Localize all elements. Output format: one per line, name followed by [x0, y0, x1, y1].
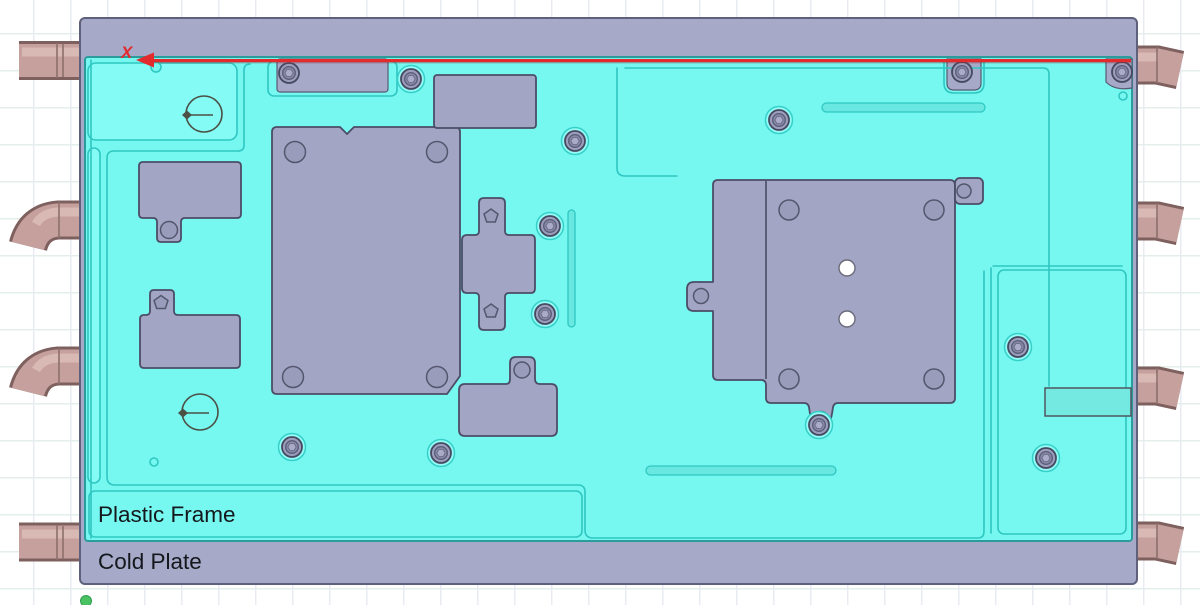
corner-hole: [427, 367, 448, 388]
slot-bottom-center: [646, 466, 836, 475]
screw-fastener: [279, 434, 306, 461]
screw-fastener: [398, 66, 425, 93]
screw-fastener: [952, 62, 972, 82]
mount-hole: [161, 222, 178, 239]
corner-hole: [924, 369, 944, 389]
component-plate-left: [272, 127, 460, 394]
pipe-left-top: [19, 43, 86, 78]
corner-hole: [924, 200, 944, 220]
through-hole-white: [839, 311, 855, 327]
plastic-frame-label: Plastic Frame: [98, 502, 236, 527]
screw-fastener: [537, 213, 564, 240]
screw-fastener: [806, 412, 833, 439]
pipe-left-bottom: [19, 525, 86, 560]
screw-fastener: [766, 107, 793, 134]
slot-vertical-center: [568, 210, 575, 327]
corner-hole: [285, 142, 306, 163]
corner-hole: [779, 200, 799, 220]
through-hole-white: [839, 260, 855, 276]
x-axis-label: X: [120, 43, 134, 62]
mount-hole: [957, 184, 971, 198]
plastic-frame-body: [85, 57, 1132, 541]
mount-hole: [694, 289, 709, 304]
corner-hole: [427, 142, 448, 163]
corner-hole: [779, 369, 799, 389]
cad-assembly-view: X Plastic Frame Cold Plate: [0, 0, 1200, 605]
corner-hole: [283, 367, 304, 388]
screw-fastener: [1005, 334, 1032, 361]
assembly-canvas: X Plastic Frame Cold Plate: [0, 0, 1200, 605]
mount-hole: [514, 362, 530, 378]
screw-fastener: [428, 440, 455, 467]
screw-fastener: [1033, 445, 1060, 472]
slot-right-edge: [1045, 388, 1131, 416]
cold-plate-label: Cold Plate: [98, 549, 202, 574]
screw-fastener: [532, 301, 559, 328]
screw-fastener: [562, 128, 589, 155]
slot-top-right: [822, 103, 985, 112]
pipe-left-elbow-lower: [28, 348, 86, 392]
screw-fastener: [1112, 62, 1132, 82]
pipe-left-elbow-upper: [28, 202, 86, 246]
screw-fastener: [279, 63, 299, 83]
pocket-left-strip: [88, 148, 100, 483]
origin-point-icon: [81, 596, 92, 605]
component-rect-top-center: [434, 75, 536, 128]
